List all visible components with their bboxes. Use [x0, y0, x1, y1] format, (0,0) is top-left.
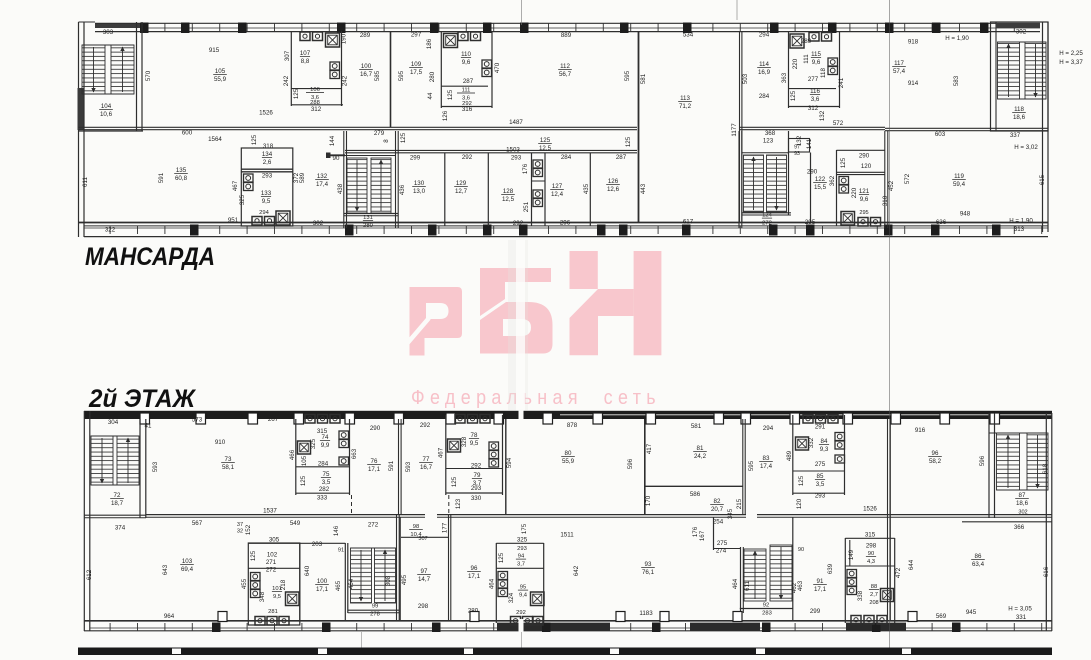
- svg-text:125: 125: [790, 90, 797, 101]
- svg-text:964: 964: [164, 613, 175, 620]
- svg-text:1503: 1503: [506, 147, 520, 154]
- svg-text:366: 366: [1014, 524, 1025, 531]
- svg-text:663: 663: [351, 448, 358, 459]
- svg-text:104: 104: [101, 103, 112, 110]
- svg-text:107: 107: [300, 50, 311, 57]
- svg-text:H = 1,90: H = 1,90: [945, 35, 969, 42]
- svg-text:549: 549: [290, 520, 301, 527]
- svg-text:581: 581: [691, 423, 702, 430]
- svg-text:118: 118: [820, 68, 827, 78]
- svg-text:1511: 1511: [560, 532, 574, 539]
- svg-text:81: 81: [697, 445, 704, 452]
- svg-text:122: 122: [815, 176, 826, 183]
- svg-text:287: 287: [616, 154, 627, 161]
- svg-text:85: 85: [817, 473, 824, 480]
- svg-text:325: 325: [517, 537, 528, 544]
- svg-text:362: 362: [829, 175, 836, 186]
- svg-text:242: 242: [342, 75, 349, 86]
- svg-text:643: 643: [162, 564, 169, 575]
- svg-text:57,4: 57,4: [893, 68, 906, 75]
- svg-text:125: 125: [625, 136, 632, 147]
- svg-text:600: 600: [182, 130, 193, 137]
- svg-text:17,1: 17,1: [814, 586, 827, 593]
- svg-text:20,7: 20,7: [711, 506, 724, 513]
- svg-text:284: 284: [561, 154, 572, 161]
- svg-text:131: 131: [363, 215, 373, 221]
- svg-text:417: 417: [646, 443, 653, 454]
- svg-text:595: 595: [398, 70, 405, 81]
- svg-text:128: 128: [503, 188, 514, 195]
- svg-text:12,4: 12,4: [551, 191, 564, 198]
- svg-text:12,5: 12,5: [539, 145, 552, 152]
- svg-text:298: 298: [866, 543, 877, 550]
- svg-text:112: 112: [560, 63, 570, 70]
- svg-text:176: 176: [692, 526, 699, 537]
- svg-text:596: 596: [979, 455, 986, 466]
- svg-text:572: 572: [833, 120, 844, 127]
- svg-text:595: 595: [624, 70, 631, 81]
- svg-text:612: 612: [86, 569, 93, 580]
- svg-text:293: 293: [262, 173, 273, 180]
- svg-text:464: 464: [489, 578, 496, 589]
- svg-text:374: 374: [115, 525, 126, 532]
- svg-text:220: 220: [792, 58, 799, 69]
- svg-text:472: 472: [895, 567, 902, 578]
- svg-text:948: 948: [960, 211, 971, 218]
- svg-text:Федеральная сеть: Федеральная сеть: [411, 387, 661, 409]
- svg-text:272: 272: [368, 522, 379, 529]
- svg-text:254: 254: [713, 519, 724, 526]
- svg-text:9,6: 9,6: [462, 59, 471, 66]
- svg-text:292: 292: [462, 154, 473, 161]
- svg-text:115: 115: [811, 51, 821, 58]
- svg-text:567: 567: [192, 520, 203, 527]
- svg-text:271: 271: [266, 559, 277, 566]
- svg-text:41: 41: [145, 423, 152, 430]
- svg-text:9,9: 9,9: [321, 442, 330, 449]
- svg-text:125: 125: [251, 134, 258, 145]
- svg-text:105: 105: [215, 68, 226, 75]
- svg-text:945: 945: [966, 609, 977, 616]
- svg-text:292: 292: [516, 610, 526, 616]
- svg-text:92: 92: [763, 603, 769, 609]
- svg-text:2й ЭТАЖ: 2й ЭТАЖ: [88, 385, 197, 413]
- svg-text:1526: 1526: [259, 110, 273, 117]
- svg-text:294: 294: [259, 210, 269, 216]
- svg-text:167: 167: [699, 530, 706, 541]
- svg-text:303: 303: [103, 29, 114, 36]
- svg-text:463: 463: [797, 580, 804, 591]
- svg-text:125: 125: [447, 89, 454, 100]
- svg-text:117: 117: [894, 60, 904, 67]
- svg-text:916: 916: [915, 427, 926, 434]
- svg-text:H = 2,25: H = 2,25: [1059, 50, 1083, 57]
- svg-text:125: 125: [250, 550, 257, 561]
- svg-text:24,2: 24,2: [694, 453, 707, 460]
- svg-text:18,7: 18,7: [111, 500, 124, 507]
- svg-text:639: 639: [827, 563, 834, 574]
- svg-text:589: 589: [299, 172, 306, 183]
- svg-text:308: 308: [385, 575, 392, 586]
- svg-text:295: 295: [859, 210, 868, 216]
- svg-text:120: 120: [796, 498, 803, 509]
- svg-text:58,2: 58,2: [929, 458, 942, 465]
- svg-text:274: 274: [716, 548, 727, 555]
- svg-text:611: 611: [82, 177, 89, 187]
- svg-text:581: 581: [640, 73, 647, 84]
- svg-text:125: 125: [798, 475, 805, 486]
- svg-text:186: 186: [426, 38, 433, 49]
- svg-text:348: 348: [259, 591, 266, 602]
- svg-text:125: 125: [451, 476, 458, 487]
- svg-text:294: 294: [759, 32, 770, 39]
- svg-text:12,5: 12,5: [502, 196, 515, 203]
- svg-text:71,2: 71,2: [679, 103, 692, 110]
- svg-text:307: 307: [418, 536, 427, 542]
- svg-text:299: 299: [810, 608, 821, 615]
- svg-text:69,4: 69,4: [181, 566, 194, 573]
- svg-text:146: 146: [333, 525, 340, 536]
- svg-text:9,5: 9,5: [470, 440, 479, 447]
- svg-text:12,7: 12,7: [455, 188, 468, 195]
- svg-text:118: 118: [1014, 106, 1024, 113]
- svg-text:15,5: 15,5: [814, 184, 827, 191]
- svg-text:241: 241: [838, 77, 845, 88]
- svg-text:77: 77: [423, 456, 430, 463]
- svg-text:586: 586: [690, 491, 701, 498]
- svg-text:443: 443: [640, 183, 647, 194]
- svg-text:572: 572: [904, 173, 911, 184]
- svg-text:17,4: 17,4: [760, 463, 773, 470]
- svg-text:644: 644: [908, 559, 915, 570]
- svg-text:585: 585: [374, 70, 381, 81]
- svg-text:215: 215: [736, 498, 743, 509]
- svg-text:14,7: 14,7: [418, 576, 431, 583]
- svg-text:436: 436: [399, 184, 406, 195]
- svg-text:83: 83: [763, 455, 770, 462]
- svg-text:17,4: 17,4: [316, 181, 329, 188]
- svg-text:97: 97: [421, 568, 428, 575]
- svg-text:302: 302: [1016, 29, 1027, 36]
- svg-text:470: 470: [494, 62, 501, 73]
- svg-text:583: 583: [953, 75, 960, 86]
- svg-text:32: 32: [237, 529, 243, 535]
- svg-text:299: 299: [410, 155, 421, 162]
- svg-text:90: 90: [868, 551, 874, 557]
- svg-text:17,1: 17,1: [468, 573, 481, 580]
- svg-text:910: 910: [215, 439, 226, 446]
- svg-text:125: 125: [840, 157, 847, 168]
- svg-text:1183: 1183: [639, 610, 653, 617]
- svg-text:129: 129: [456, 180, 467, 187]
- svg-text:9,4: 9,4: [519, 593, 528, 599]
- svg-text:176: 176: [522, 163, 529, 174]
- svg-text:111: 111: [462, 88, 471, 94]
- svg-text:9,5: 9,5: [262, 198, 271, 205]
- svg-text:368: 368: [765, 130, 776, 137]
- svg-text:134: 134: [262, 151, 273, 158]
- svg-text:9,6: 9,6: [812, 59, 821, 66]
- svg-text:59,4: 59,4: [953, 181, 966, 188]
- svg-text:312: 312: [808, 105, 819, 112]
- svg-text:125: 125: [293, 88, 300, 99]
- svg-text:889: 889: [561, 32, 572, 39]
- svg-text:591: 591: [388, 460, 395, 471]
- svg-text:324: 324: [508, 592, 515, 603]
- svg-text:18,6: 18,6: [1016, 500, 1029, 507]
- svg-text:290: 290: [807, 169, 818, 176]
- svg-text:275: 275: [717, 540, 728, 547]
- svg-text:190: 190: [341, 33, 348, 44]
- svg-text:141: 141: [806, 138, 813, 149]
- svg-text:331: 331: [1016, 614, 1027, 621]
- svg-text:298: 298: [418, 603, 429, 610]
- svg-text:133: 133: [261, 190, 272, 197]
- svg-text:126: 126: [608, 178, 619, 185]
- svg-text:322: 322: [105, 227, 116, 234]
- svg-text:175: 175: [521, 523, 528, 534]
- svg-text:152: 152: [245, 524, 252, 535]
- svg-text:132: 132: [796, 135, 803, 146]
- svg-text:116: 116: [810, 88, 820, 95]
- svg-text:281: 281: [268, 609, 278, 615]
- svg-text:280: 280: [429, 71, 436, 82]
- svg-text:465: 465: [335, 580, 342, 591]
- svg-text:120: 120: [861, 163, 872, 170]
- svg-text:284: 284: [318, 461, 329, 468]
- svg-text:1526: 1526: [863, 506, 877, 513]
- svg-text:17,1: 17,1: [368, 466, 381, 473]
- svg-text:3,6: 3,6: [811, 96, 820, 103]
- svg-text:91: 91: [338, 548, 344, 554]
- svg-text:90: 90: [798, 547, 804, 553]
- svg-text:573: 573: [192, 417, 203, 424]
- svg-text:135: 135: [176, 167, 187, 174]
- svg-text:618: 618: [1042, 463, 1049, 474]
- svg-text:123: 123: [763, 138, 774, 145]
- svg-text:615: 615: [1039, 174, 1046, 185]
- svg-text:455: 455: [241, 578, 248, 589]
- svg-text:611: 611: [744, 581, 751, 591]
- svg-text:915: 915: [209, 47, 220, 54]
- svg-text:1487: 1487: [509, 119, 523, 126]
- svg-text:467: 467: [438, 447, 445, 458]
- svg-text:293: 293: [511, 155, 522, 162]
- svg-text:124: 124: [762, 213, 772, 219]
- svg-text:279: 279: [374, 130, 385, 137]
- svg-text:80: 80: [565, 450, 572, 457]
- svg-text:296: 296: [560, 220, 571, 227]
- svg-text:435: 435: [583, 183, 590, 194]
- svg-text:106: 106: [310, 87, 320, 93]
- svg-text:12,6: 12,6: [607, 186, 620, 193]
- svg-text:123: 123: [455, 498, 462, 509]
- svg-text:330: 330: [471, 495, 482, 502]
- svg-text:114: 114: [759, 61, 769, 68]
- svg-text:72: 72: [114, 492, 121, 499]
- svg-text:100: 100: [361, 63, 372, 70]
- svg-text:278: 278: [370, 612, 380, 618]
- svg-text:3,7: 3,7: [517, 562, 525, 568]
- svg-text:82: 82: [714, 498, 721, 505]
- svg-text:МАНСАРДА: МАНСАРДА: [85, 243, 215, 271]
- svg-text:74: 74: [322, 434, 329, 441]
- svg-text:79: 79: [474, 472, 481, 479]
- svg-text:277: 277: [808, 76, 819, 83]
- svg-text:1177: 1177: [731, 123, 738, 137]
- svg-text:37: 37: [237, 522, 243, 528]
- svg-text:282: 282: [319, 486, 330, 493]
- svg-text:1537: 1537: [263, 508, 277, 515]
- svg-text:325: 325: [239, 194, 246, 205]
- svg-text:111: 111: [803, 54, 810, 64]
- svg-text:13,0: 13,0: [413, 188, 426, 195]
- svg-text:125: 125: [498, 552, 505, 563]
- svg-text:73: 73: [225, 456, 232, 463]
- svg-text:60,8: 60,8: [175, 175, 188, 182]
- svg-text:272: 272: [266, 567, 277, 574]
- svg-text:918: 918: [908, 39, 919, 46]
- svg-text:10,6: 10,6: [100, 111, 113, 118]
- svg-text:302: 302: [313, 220, 324, 227]
- svg-text:2,6: 2,6: [263, 159, 272, 166]
- svg-text:464: 464: [348, 578, 355, 589]
- svg-text:489: 489: [786, 450, 793, 461]
- svg-text:318: 318: [263, 143, 274, 150]
- svg-text:88: 88: [871, 584, 877, 590]
- svg-text:87: 87: [1019, 492, 1026, 499]
- svg-text:333: 333: [317, 495, 328, 502]
- svg-text:293: 293: [815, 493, 826, 500]
- svg-text:93: 93: [645, 561, 652, 568]
- svg-text:H = 3,37: H = 3,37: [1059, 59, 1083, 66]
- svg-text:280: 280: [363, 223, 373, 229]
- svg-text:297: 297: [411, 32, 422, 39]
- svg-text:105: 105: [301, 455, 308, 466]
- svg-text:593: 593: [152, 461, 159, 472]
- svg-text:17,5: 17,5: [410, 69, 423, 76]
- svg-text:295: 295: [805, 219, 816, 226]
- svg-text:208: 208: [869, 600, 878, 606]
- svg-text:102: 102: [267, 552, 278, 559]
- svg-text:58,1: 58,1: [222, 464, 235, 471]
- svg-text:594: 594: [506, 457, 513, 468]
- svg-text:94: 94: [518, 554, 525, 560]
- svg-text:616: 616: [1043, 566, 1050, 577]
- svg-text:132: 132: [819, 110, 826, 121]
- svg-text:287: 287: [463, 78, 474, 85]
- svg-text:570: 570: [145, 70, 152, 81]
- svg-text:55,9: 55,9: [214, 76, 227, 83]
- svg-text:294: 294: [763, 425, 774, 432]
- svg-text:289: 289: [801, 38, 812, 45]
- svg-text:9,6: 9,6: [860, 196, 869, 203]
- svg-text:203: 203: [312, 541, 323, 548]
- svg-text:56,7: 56,7: [559, 71, 572, 78]
- svg-text:363: 363: [781, 72, 788, 83]
- svg-text:307: 307: [284, 50, 291, 61]
- svg-text:292: 292: [420, 422, 431, 429]
- svg-text:110: 110: [461, 51, 471, 58]
- svg-text:149: 149: [848, 549, 855, 560]
- svg-text:H = 3,02: H = 3,02: [1014, 144, 1038, 151]
- svg-text:9,3: 9,3: [820, 446, 829, 453]
- svg-text:218: 218: [280, 579, 287, 590]
- svg-text:345: 345: [727, 508, 734, 519]
- svg-text:96: 96: [471, 565, 478, 572]
- svg-text:98: 98: [413, 524, 419, 530]
- svg-text:220: 220: [851, 187, 858, 198]
- svg-text:596: 596: [627, 458, 634, 469]
- svg-text:338: 338: [857, 590, 864, 601]
- svg-text:63,4: 63,4: [972, 561, 985, 568]
- svg-text:593: 593: [405, 461, 412, 472]
- svg-text:291: 291: [815, 424, 826, 431]
- svg-text:109: 109: [411, 61, 422, 68]
- svg-text:125: 125: [400, 132, 407, 143]
- svg-text:144: 144: [329, 135, 336, 146]
- svg-text:272: 272: [762, 221, 772, 227]
- svg-text:534: 534: [683, 32, 694, 39]
- svg-text:177: 177: [442, 522, 449, 533]
- svg-text:91: 91: [817, 578, 824, 585]
- svg-text:H = 3,05: H = 3,05: [1008, 606, 1032, 613]
- svg-text:617: 617: [683, 219, 694, 226]
- svg-text:464: 464: [732, 578, 739, 589]
- svg-text:126: 126: [442, 110, 449, 121]
- svg-text:290: 290: [370, 425, 381, 432]
- svg-text:503: 503: [742, 73, 749, 84]
- svg-text:640: 640: [304, 565, 311, 576]
- svg-text:466: 466: [289, 449, 296, 460]
- svg-text:125: 125: [540, 137, 551, 144]
- svg-text:642: 642: [573, 565, 580, 576]
- svg-text:313: 313: [1014, 226, 1025, 233]
- svg-text:96: 96: [932, 450, 939, 457]
- svg-text:1564: 1564: [208, 136, 222, 143]
- svg-text:121: 121: [859, 188, 870, 195]
- svg-text:275: 275: [815, 461, 826, 468]
- svg-text:125: 125: [300, 475, 307, 486]
- svg-text:569: 569: [936, 613, 947, 620]
- svg-text:16,7: 16,7: [420, 464, 433, 471]
- svg-text:467: 467: [232, 180, 239, 191]
- svg-text:84: 84: [821, 438, 828, 445]
- svg-text:76: 76: [371, 458, 378, 465]
- svg-text:H = 1,90: H = 1,90: [1009, 218, 1033, 225]
- svg-text:130: 130: [414, 180, 425, 187]
- svg-text:16,7: 16,7: [360, 71, 373, 78]
- svg-text:18,6: 18,6: [1013, 114, 1026, 121]
- svg-text:914: 914: [908, 80, 919, 87]
- svg-text:113: 113: [680, 95, 690, 102]
- svg-text:93: 93: [794, 151, 800, 157]
- svg-text:316: 316: [462, 106, 473, 113]
- svg-text:55,9: 55,9: [562, 458, 575, 465]
- svg-text:100: 100: [317, 578, 328, 585]
- svg-text:267: 267: [268, 416, 279, 423]
- svg-text:292: 292: [471, 462, 482, 469]
- svg-text:328: 328: [461, 436, 468, 447]
- svg-text:86: 86: [975, 553, 982, 560]
- svg-text:8: 8: [383, 139, 390, 143]
- svg-text:591: 591: [158, 172, 165, 183]
- svg-text:337: 337: [1010, 132, 1021, 139]
- svg-text:2,7: 2,7: [870, 592, 878, 598]
- svg-text:293: 293: [517, 546, 527, 552]
- svg-text:289: 289: [360, 32, 371, 39]
- svg-text:636: 636: [936, 219, 947, 226]
